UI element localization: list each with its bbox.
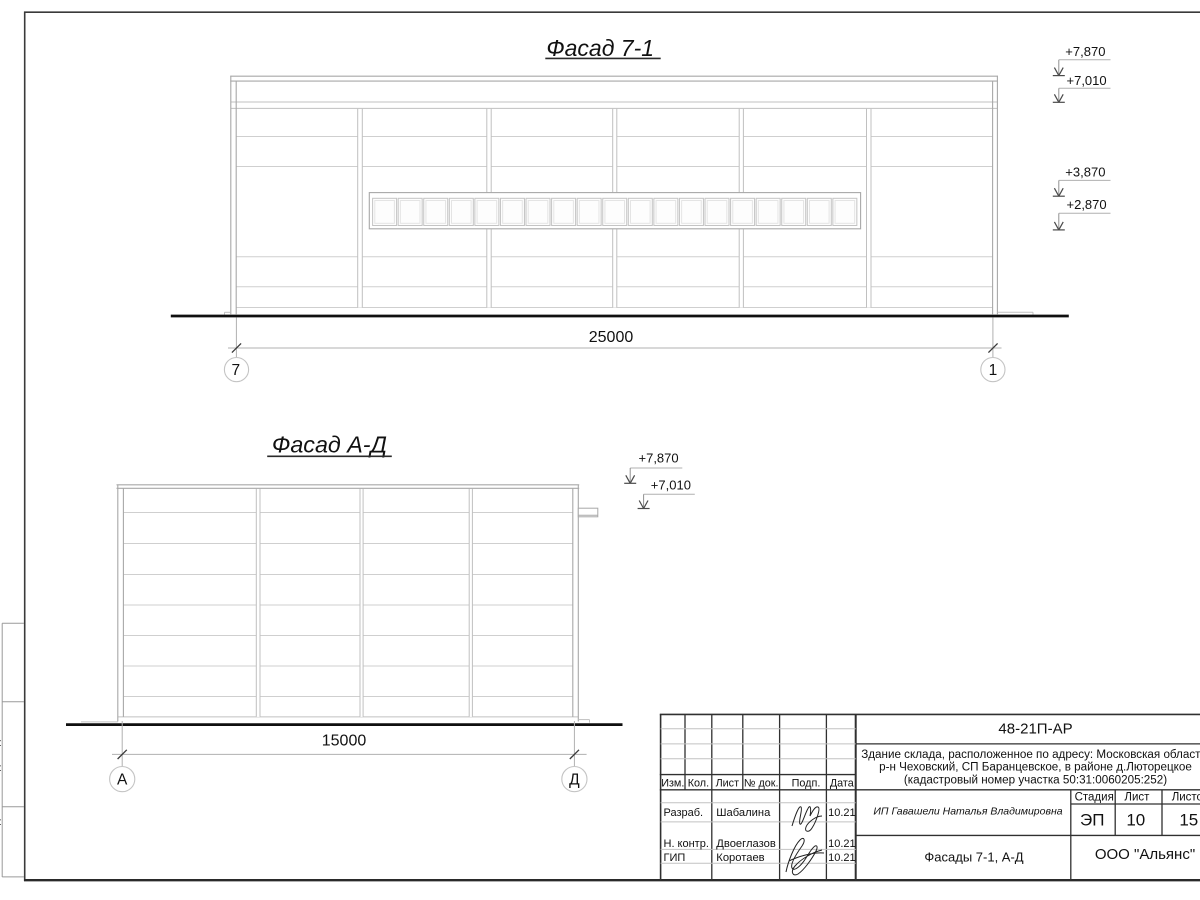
svg-text:25000: 25000 — [589, 329, 634, 346]
svg-text:7: 7 — [231, 362, 240, 379]
svg-text:+2,870: +2,870 — [1067, 197, 1107, 212]
svg-text:№ док.: № док. — [744, 777, 779, 789]
svg-text:ЭП: ЭП — [1080, 810, 1104, 829]
svg-text:+7,870: +7,870 — [1065, 44, 1105, 59]
svg-text:Двоеглазов: Двоеглазов — [716, 838, 776, 850]
svg-text:Кол.: Кол. — [688, 777, 709, 789]
svg-text:Коротаев: Коротаев — [716, 852, 764, 864]
svg-text:Разраб.: Разраб. — [664, 807, 704, 819]
svg-text:Инв. № подл.: Инв. № подл. — [0, 811, 2, 873]
svg-text:Стадия: Стадия — [1075, 792, 1114, 804]
svg-text:Дата: Дата — [830, 777, 854, 789]
svg-text:15: 15 — [1179, 810, 1198, 829]
svg-text:10: 10 — [1126, 810, 1145, 829]
svg-text:1: 1 — [989, 362, 998, 379]
svg-text:Фасады 7-1, А-Д: Фасады 7-1, А-Д — [924, 850, 1023, 865]
svg-text:Лист: Лист — [716, 777, 740, 789]
svg-text:Д: Д — [569, 772, 580, 789]
svg-text:Фасад 7-1: Фасад 7-1 — [546, 35, 654, 61]
svg-text:Подп. и дата: Подп. и дата — [0, 724, 2, 783]
svg-text:Н. контр.: Н. контр. — [664, 838, 709, 850]
svg-text:Подп.: Подп. — [792, 777, 821, 789]
svg-text:10.21: 10.21 — [828, 807, 856, 819]
svg-text:15000: 15000 — [322, 733, 367, 750]
svg-text:Фасад А-Д: Фасад А-Д — [272, 432, 387, 458]
svg-text:48-21П-АР: 48-21П-АР — [998, 721, 1072, 738]
svg-text:ООО "Альянс": ООО "Альянс" — [1095, 846, 1195, 863]
svg-text:(кадастровый номер участка 50:: (кадастровый номер участка 50:31:0060205… — [904, 773, 1167, 786]
svg-text:Взам. инв. №: Взам. инв. № — [0, 631, 2, 693]
svg-text:ГИП: ГИП — [664, 852, 686, 864]
svg-text:+7,010: +7,010 — [1067, 73, 1107, 88]
svg-text:+7,010: +7,010 — [651, 478, 691, 493]
svg-text:Шабалина: Шабалина — [716, 807, 771, 819]
svg-text:+7,870: +7,870 — [639, 450, 679, 465]
svg-text:Изм.: Изм. — [661, 777, 684, 789]
svg-text:Лист: Лист — [1124, 792, 1150, 804]
svg-text:+3,870: +3,870 — [1065, 164, 1105, 179]
svg-text:10.21: 10.21 — [828, 838, 856, 850]
svg-text:Листов: Листов — [1172, 792, 1200, 804]
svg-text:Здание склада, расположенное п: Здание склада, расположенное по адресу: … — [861, 748, 1200, 761]
svg-text:ИП Гавашели Наталья Владимиров: ИП Гавашели Наталья Владимировна — [873, 805, 1062, 817]
svg-text:А: А — [117, 772, 128, 789]
svg-text:р-н Чеховский, СП Баранцевское: р-н Чеховский, СП Баранцевское, в районе… — [879, 761, 1192, 774]
svg-text:10.21: 10.21 — [828, 852, 856, 864]
